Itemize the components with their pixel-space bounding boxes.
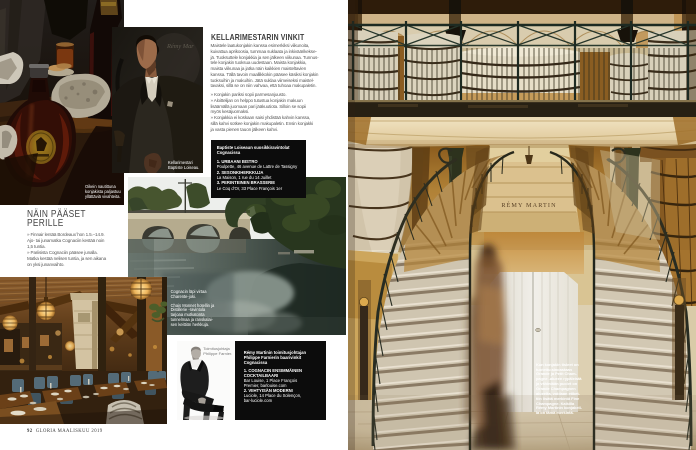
svg-text:Rémy Mar: Rémy Mar: [166, 43, 194, 50]
